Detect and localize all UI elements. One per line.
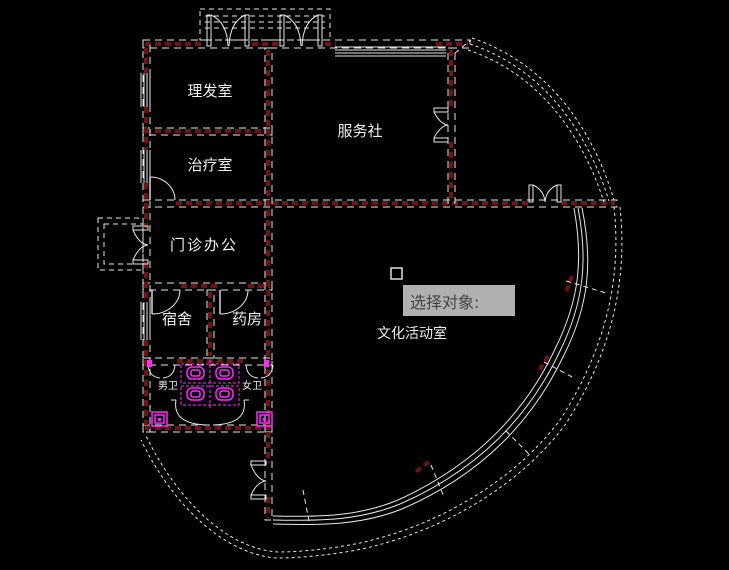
cad-drawing-canvas[interactable]: 理发室 服务社 治疗室 门诊办公 宿舍 药房 文化活动室 男卫 女卫 选择对象: [0,0,729,570]
room-label-barber: 理发室 [187,82,232,100]
door-treatment-room [150,177,175,200]
double-door-top-1 [207,15,249,46]
squat-toilet [216,388,233,400]
room-label-service: 服务社 [337,122,382,140]
squat-toilet [187,367,204,379]
selection-pickbox-cursor [391,268,402,279]
room-label-dormitory: 宿舍 [162,310,192,328]
entry-porch-top [200,9,330,40]
toilet-fixtures [147,360,272,426]
double-door-south-stub [251,461,266,499]
double-door-top-2 [280,15,322,46]
squat-toilet [187,388,204,400]
cad-viewport[interactable]: 理发室 服务社 治疗室 门诊办公 宿舍 药房 文化活动室 男卫 女卫 选择对象: [0,0,729,570]
room-label-pharmacy: 药房 [232,310,262,328]
room-label-culture-activity: 文化活动室 [377,325,447,342]
double-door-service-east [434,108,448,142]
command-prompt-text: 选择对象: [410,293,479,312]
window-left-1 [141,73,150,107]
window-left-2 [141,150,150,183]
room-labels: 理发室 服务社 治疗室 门诊办公 宿舍 药房 文化活动室 男卫 女卫 [158,82,447,392]
wash-basins [171,400,249,425]
room-label-mens-wc: 男卫 [158,380,178,392]
floor-drain [152,412,167,426]
room-label-clinic-office: 门诊办公 [170,236,238,254]
double-door-left-porch [133,226,148,264]
room-label-treatment: 治疗室 [187,156,232,174]
squat-toilet [216,367,233,379]
room-label-womens-wc: 女卫 [242,379,262,392]
double-door-east-wall [529,185,561,202]
window-left-3 [141,302,150,340]
roof-eave-lines [141,38,622,558]
command-prompt-tooltip: 选择对象: [403,285,515,316]
door-mens-wc [148,365,175,378]
curved-window-wall [273,208,606,524]
